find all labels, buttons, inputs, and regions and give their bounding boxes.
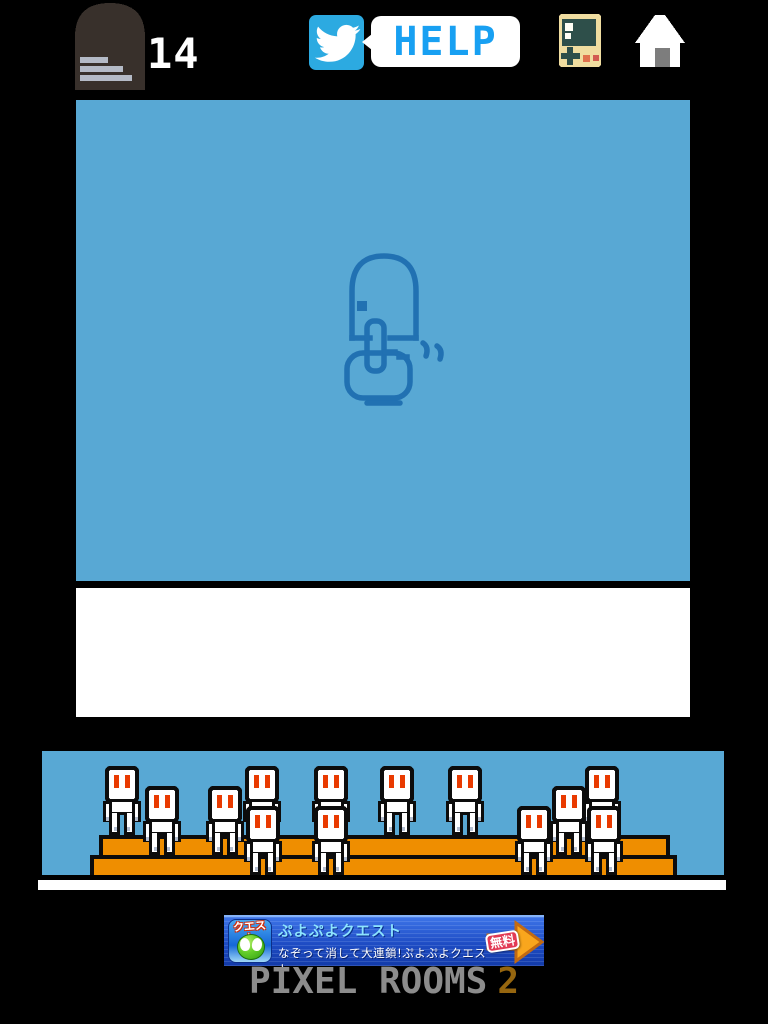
stage-select-button[interactable] (75, 3, 145, 90)
help-label: HELP (371, 16, 520, 67)
crowd-scene (42, 751, 724, 875)
tap-hint-icon (76, 100, 690, 581)
home-button[interactable] (635, 15, 685, 67)
game-floor-area[interactable] (76, 588, 690, 717)
ad-cta[interactable]: 無料 (486, 919, 544, 965)
footer-logo-number: 2 (497, 964, 519, 1000)
ad-app-icon[interactable]: クエスト (228, 919, 272, 963)
room-number: 14 (147, 33, 217, 75)
home-icon (635, 15, 685, 67)
ad-banner[interactable]: クエスト ぷよぷよクエスト なぞって消して大連鎖!ぷよぷよクエスト 無料 (224, 915, 544, 966)
divider-line (38, 880, 726, 890)
puyo-character-icon (237, 934, 265, 960)
door-icon (75, 3, 145, 90)
app-screen: { "header": { "rooms_count": "14", "help… (0, 0, 768, 1024)
twitter-icon[interactable] (309, 15, 364, 70)
help-speech-bubble[interactable]: HELP (371, 16, 520, 67)
footer-logo: PIXEL ROOMS 2 (0, 964, 768, 1000)
game-room-screen[interactable] (76, 100, 690, 581)
sound-console-button[interactable] (559, 14, 601, 67)
footer-logo-text: PIXEL ROOMS (249, 964, 487, 1000)
bubble-tail (362, 34, 372, 50)
ad-title: ぷよぷよクエスト (278, 920, 488, 941)
help-button[interactable]: HELP (309, 12, 523, 72)
twitter-bird-icon (309, 15, 364, 70)
game-console-icon (559, 14, 601, 67)
